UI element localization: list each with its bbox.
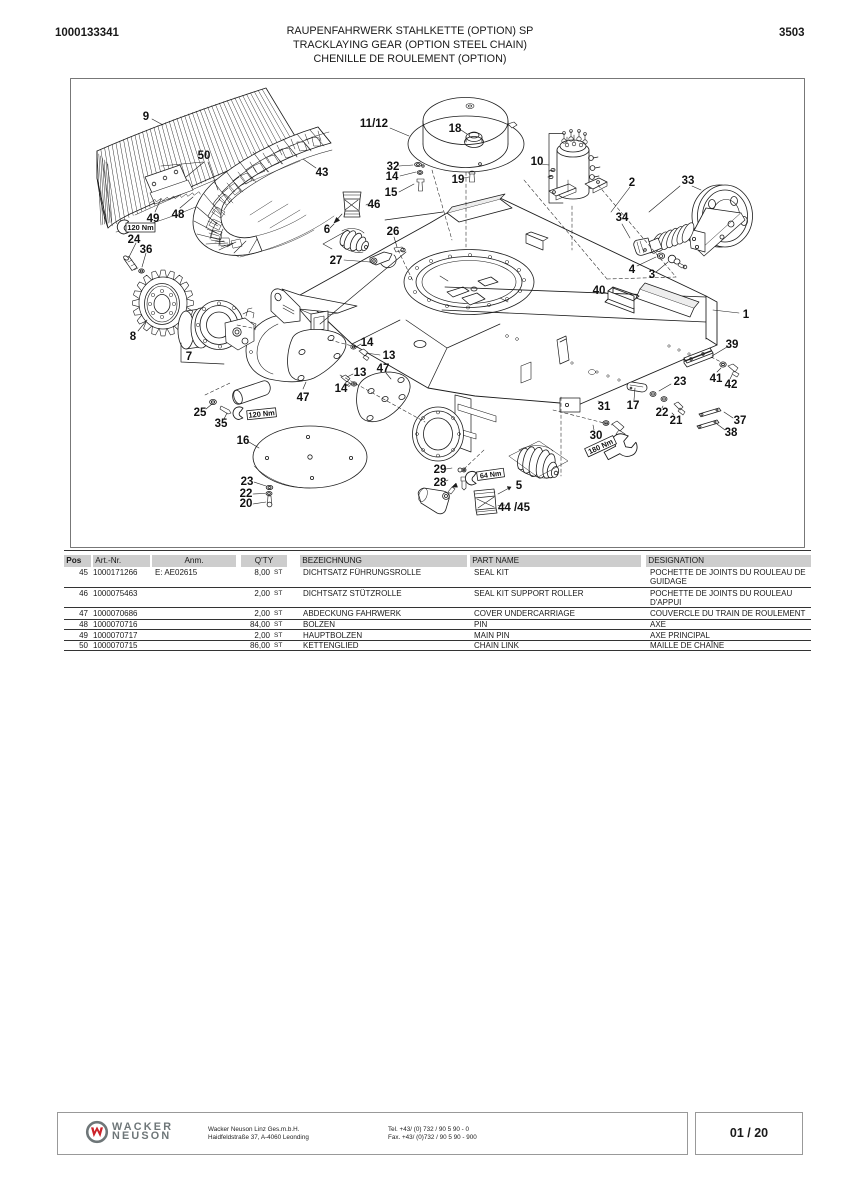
- svg-text:120 Nm: 120 Nm: [248, 408, 276, 420]
- svg-text:30: 30: [590, 430, 603, 442]
- svg-text:20: 20: [240, 498, 253, 510]
- svg-text:25: 25: [194, 407, 207, 419]
- svg-text:15: 15: [385, 187, 398, 199]
- svg-text:14: 14: [335, 383, 348, 395]
- svg-text:14: 14: [386, 171, 399, 183]
- svg-text:2: 2: [629, 177, 635, 189]
- svg-text:47: 47: [297, 392, 310, 404]
- svg-text:26: 26: [387, 226, 400, 238]
- svg-text:33: 33: [682, 175, 695, 187]
- svg-text:28: 28: [434, 477, 447, 489]
- svg-text:4: 4: [629, 264, 636, 276]
- svg-text:50: 50: [198, 150, 211, 162]
- svg-text:13: 13: [354, 367, 367, 379]
- svg-text:48: 48: [172, 209, 185, 221]
- svg-text:17: 17: [627, 400, 640, 412]
- svg-text:39: 39: [726, 339, 739, 351]
- svg-text:5: 5: [516, 480, 523, 492]
- svg-text:8: 8: [130, 331, 137, 343]
- svg-text:37: 37: [734, 415, 747, 427]
- svg-text:42: 42: [725, 379, 738, 391]
- svg-text:11/12: 11/12: [360, 118, 388, 130]
- svg-text:41: 41: [710, 373, 723, 385]
- svg-text:23: 23: [241, 476, 254, 488]
- svg-text:13: 13: [383, 350, 396, 362]
- svg-text:1: 1: [743, 309, 750, 321]
- svg-text:9: 9: [143, 111, 149, 123]
- svg-text:21: 21: [670, 415, 683, 427]
- svg-text:14: 14: [361, 337, 374, 349]
- svg-text:34: 34: [616, 212, 629, 224]
- svg-text:31: 31: [598, 401, 611, 413]
- svg-text:23: 23: [674, 376, 687, 388]
- svg-text:47: 47: [377, 363, 390, 375]
- svg-text:7: 7: [186, 351, 192, 363]
- svg-text:64 Nm: 64 Nm: [479, 469, 502, 481]
- svg-text:46: 46: [368, 199, 381, 211]
- svg-text:16: 16: [237, 435, 250, 447]
- svg-text:27: 27: [330, 255, 343, 267]
- svg-text:19: 19: [452, 174, 465, 186]
- svg-text:38: 38: [725, 427, 738, 439]
- svg-text:18: 18: [449, 123, 462, 135]
- svg-text:43: 43: [316, 167, 329, 179]
- svg-text:36: 36: [140, 244, 153, 256]
- svg-text:6: 6: [324, 224, 330, 236]
- svg-text:40: 40: [593, 285, 606, 297]
- svg-text:29: 29: [434, 464, 447, 476]
- svg-text:10: 10: [531, 156, 544, 168]
- svg-text:35: 35: [215, 418, 228, 430]
- svg-text:3: 3: [649, 269, 655, 281]
- svg-text:44 /45: 44 /45: [498, 502, 531, 514]
- svg-text:22: 22: [656, 407, 669, 419]
- svg-text:49: 49: [147, 213, 160, 225]
